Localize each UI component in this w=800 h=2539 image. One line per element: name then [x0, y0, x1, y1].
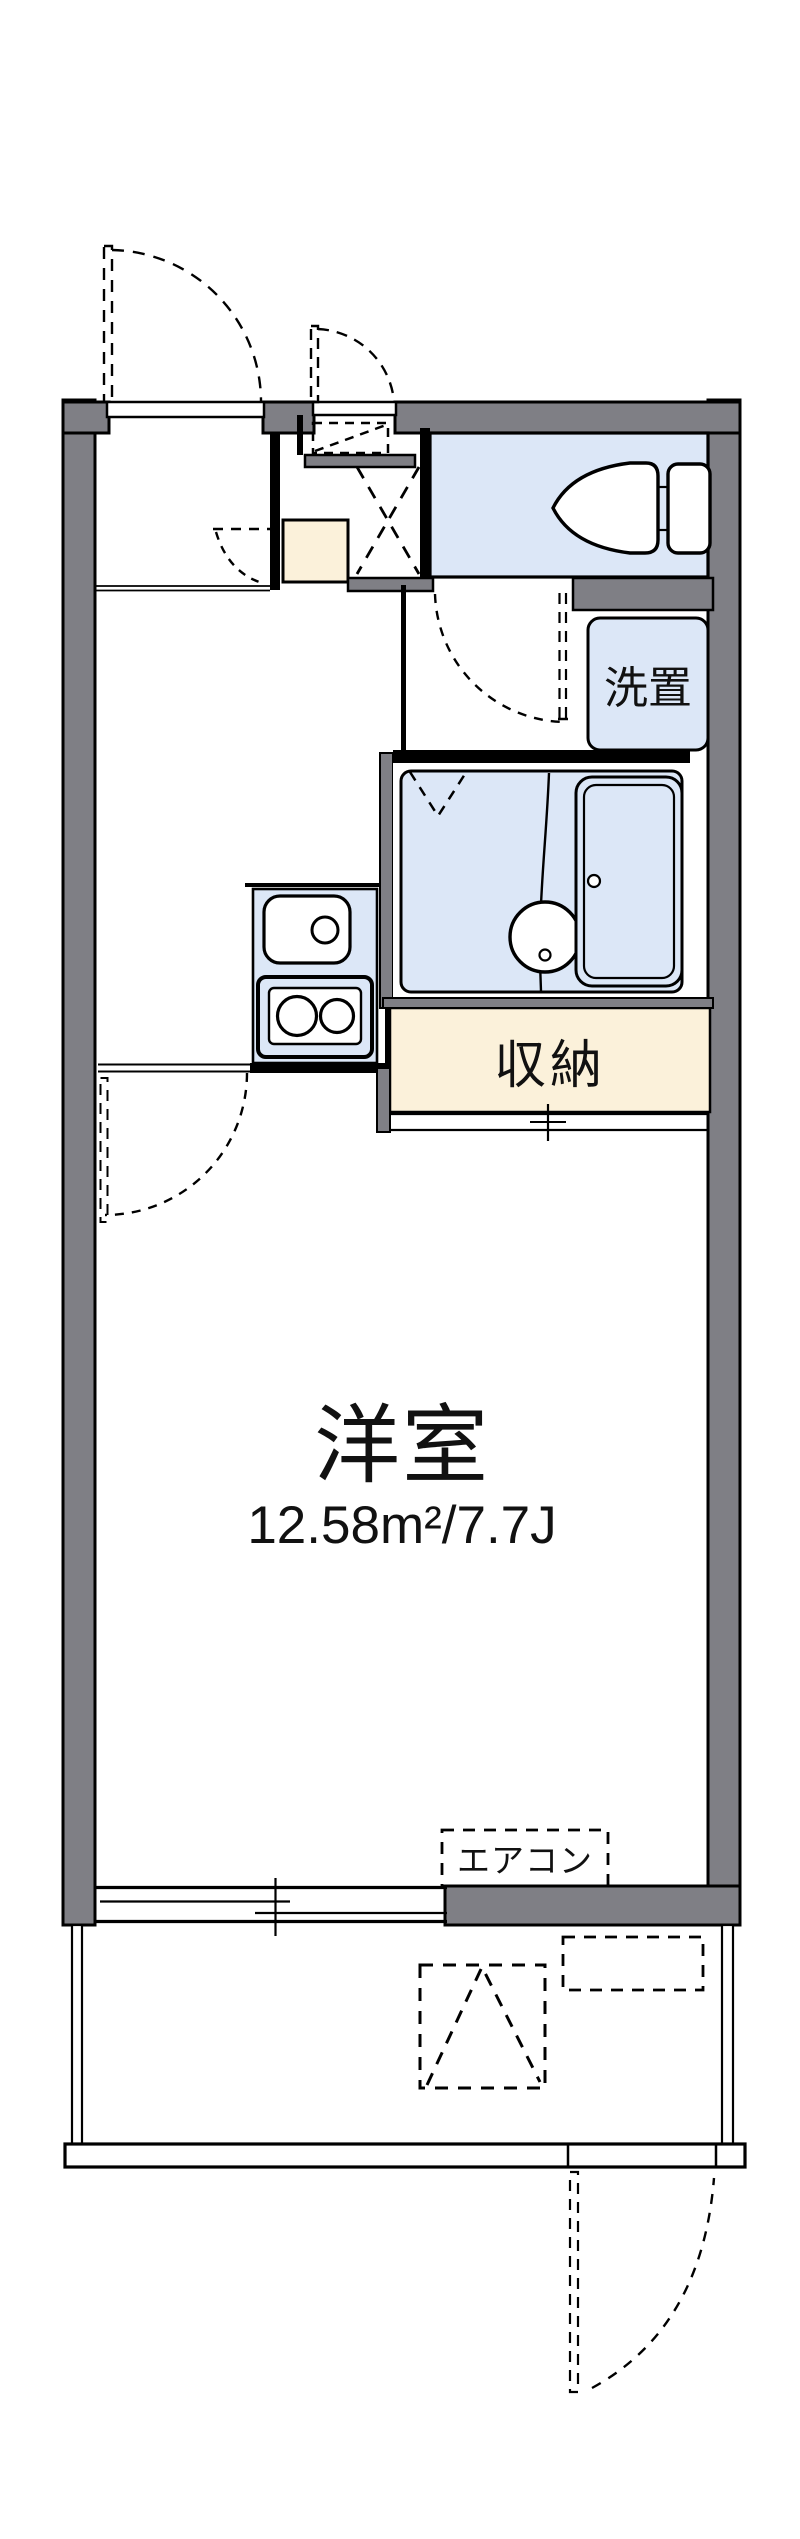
hall-wall-stub — [348, 578, 433, 591]
wall-top-c — [395, 402, 740, 433]
washroom-door-arc — [435, 594, 566, 722]
water-heater-box — [420, 1965, 545, 2088]
burner-left — [278, 997, 317, 1036]
service-door-leaf — [311, 326, 318, 402]
service-door-threshold — [313, 402, 396, 415]
wall-right — [708, 400, 740, 1925]
sink-drain — [312, 917, 338, 943]
vestibule-wall — [297, 415, 303, 455]
floorplan-drawing — [0, 0, 800, 2539]
storage-floor — [390, 1008, 710, 1112]
entrance-x-mark — [357, 467, 419, 574]
washroom-partition — [401, 585, 406, 757]
service-door-arc — [318, 329, 394, 401]
vestibule-wall-stub — [305, 455, 415, 467]
bath-left-wall — [380, 753, 393, 1008]
entrance-door-threshold — [107, 402, 264, 417]
service-door-swing — [311, 326, 394, 402]
kitchen — [245, 883, 385, 1073]
bathtub-handle — [588, 875, 600, 887]
wall-bottom — [445, 1886, 740, 1925]
overhead-shelf-diagonal — [315, 425, 386, 451]
main-room-door — [98, 1065, 250, 1223]
toilet-tank — [668, 464, 710, 553]
water-heater-mark — [427, 1967, 540, 2085]
washer-space — [588, 618, 708, 750]
balcony-rail-left — [72, 1925, 82, 2146]
balcony-rail-right — [722, 1925, 733, 2146]
bathroom — [380, 750, 690, 1008]
bath-top-wall — [393, 750, 690, 763]
toilet-bottom-wall — [573, 578, 713, 610]
bath-drain — [540, 950, 551, 961]
aircon-box — [442, 1830, 608, 1886]
entry-door-arc — [216, 532, 262, 583]
entrance-door-swing — [104, 246, 261, 402]
wall-top-a — [63, 402, 109, 433]
storage-left-stub — [377, 1068, 390, 1132]
entry-room-wall — [270, 433, 280, 590]
room-door-leaf — [101, 1078, 108, 1222]
storage-closet — [377, 998, 713, 1141]
entrance-door-leaf — [104, 246, 112, 402]
wall-left — [63, 400, 95, 1925]
storage-top-wall — [383, 998, 713, 1008]
toilet-left-wall — [420, 428, 430, 583]
wall-top-b — [263, 402, 314, 433]
sliding-window — [95, 1878, 447, 1936]
utility-box — [563, 1937, 703, 1990]
room-door-arc — [105, 1073, 247, 1215]
entrance-door-arc — [112, 250, 261, 401]
door-thresholds — [107, 402, 396, 417]
shoe-box — [283, 520, 348, 582]
balcony-gate-arc — [592, 2178, 714, 2388]
washroom-door — [435, 593, 568, 722]
kitchen-counter-edge — [245, 883, 380, 887]
burner-right — [321, 1000, 354, 1033]
balcony-gate-leaf — [570, 2172, 578, 2392]
balcony-rail-bottom — [65, 2144, 745, 2167]
balcony — [65, 1925, 745, 2392]
floorplan-canvas: 洋室 12.58m²/7.7J 収納 洗置 エアコン — [0, 0, 800, 2539]
kitchen-bottom-wall — [250, 1063, 385, 1073]
